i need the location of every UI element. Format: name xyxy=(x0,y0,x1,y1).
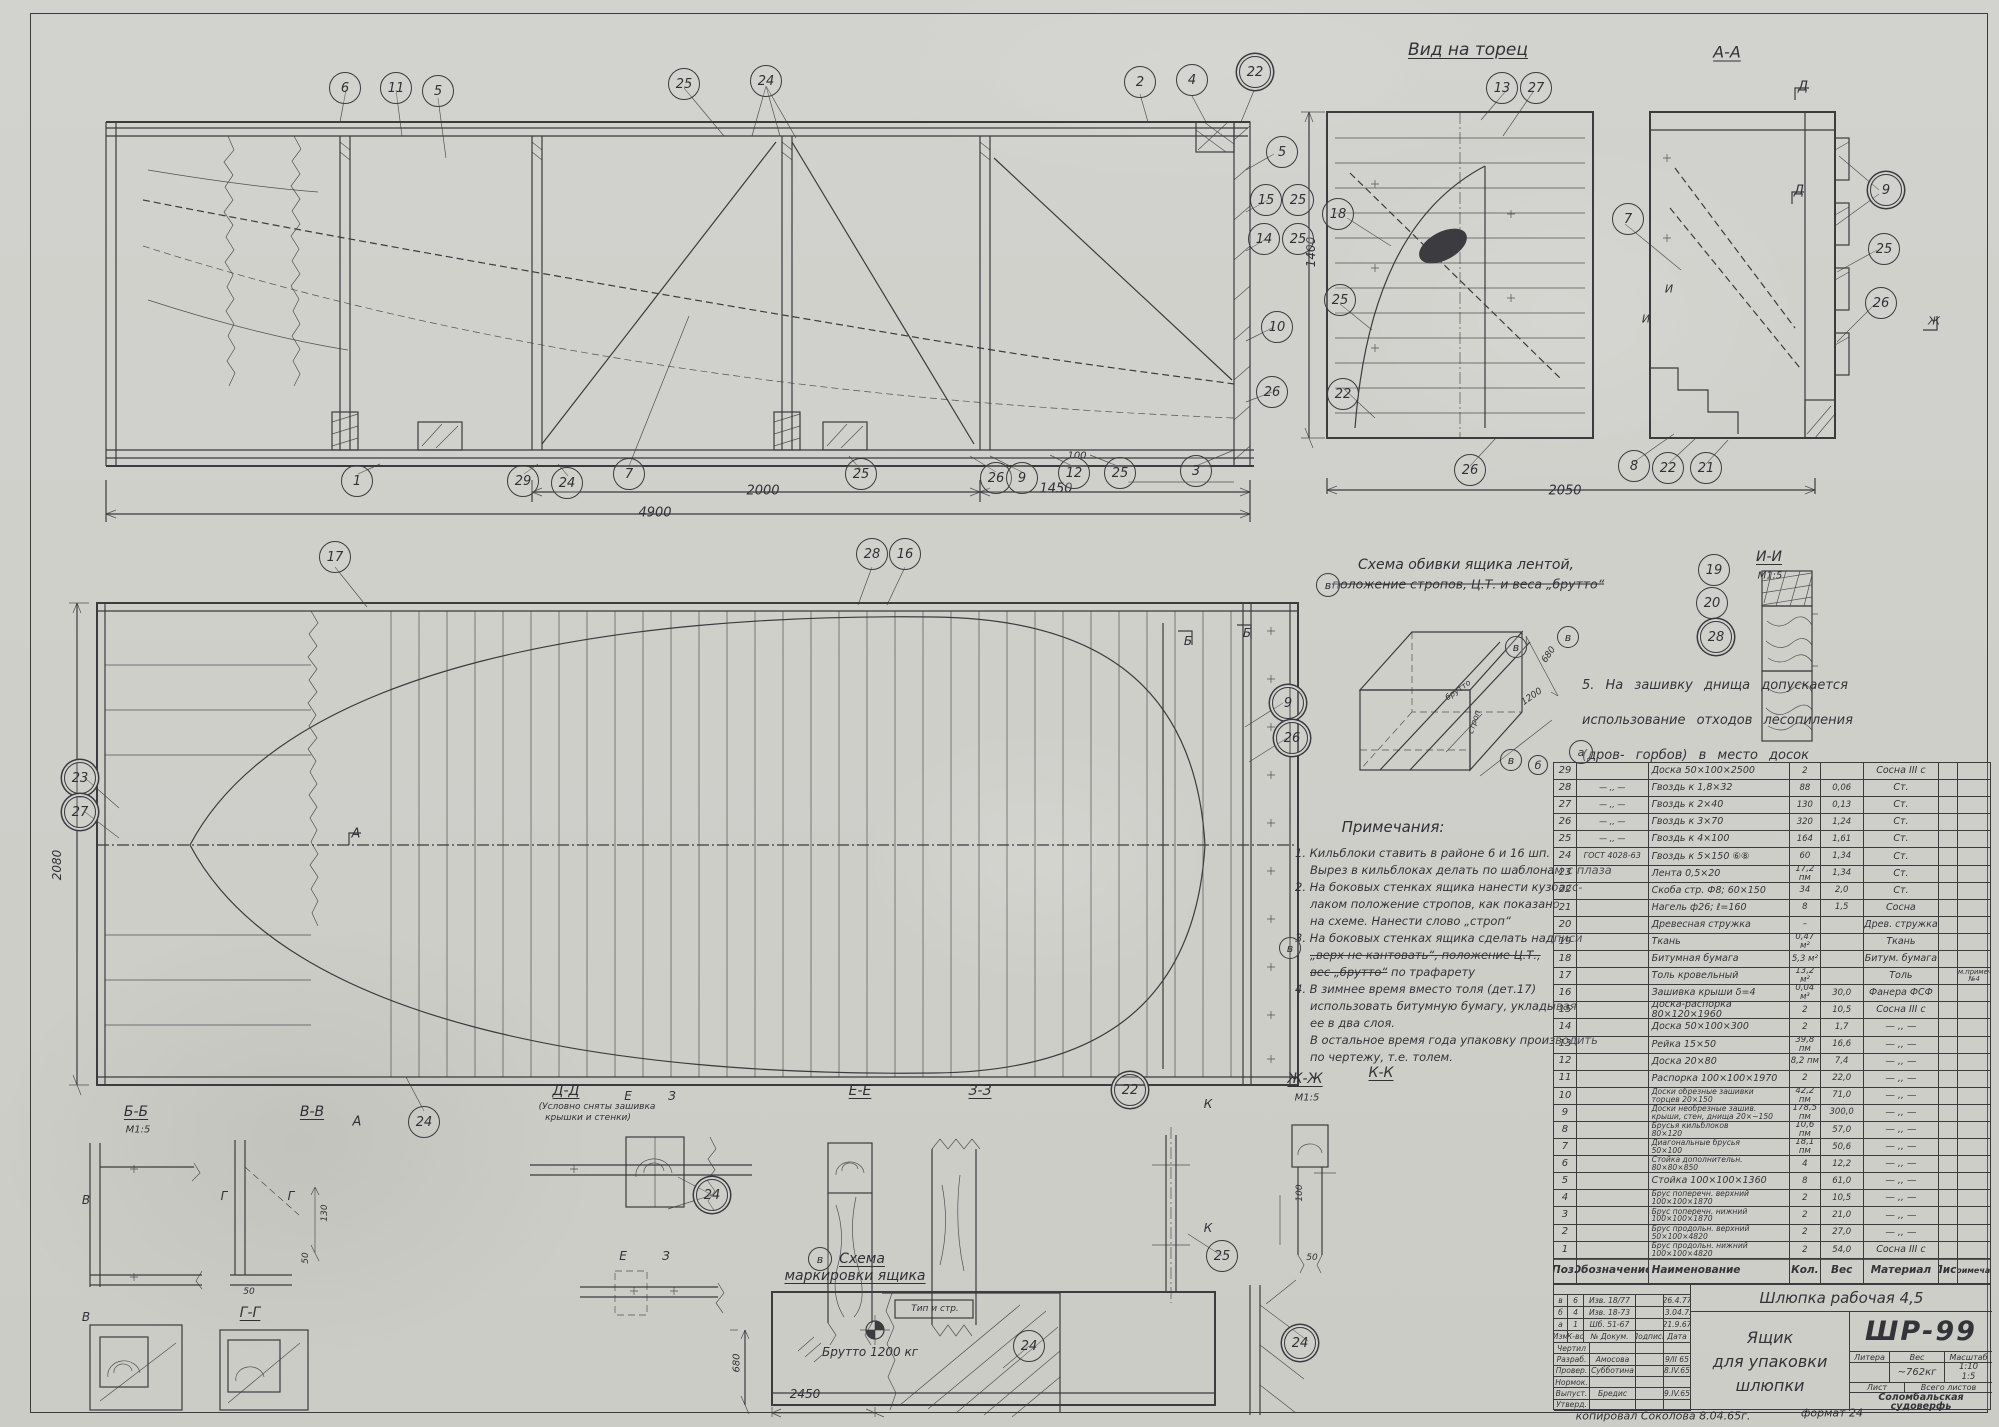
dim-label: В xyxy=(82,1310,90,1324)
table-cell: 5,3 м² xyxy=(1790,951,1821,967)
dim-label: К xyxy=(1204,1221,1213,1235)
dim-label: 130 xyxy=(320,1204,330,1221)
note-line: на схеме. Нанести слово „строп“ xyxy=(1295,913,1567,930)
title-block-cell xyxy=(1664,1377,1690,1387)
table-cell xyxy=(1577,1002,1649,1018)
title-block-cell xyxy=(1664,1343,1690,1353)
callout-2: 2 xyxy=(1124,66,1156,98)
callout-24: 24 xyxy=(551,467,583,499)
table-cell: 29 xyxy=(1554,763,1577,779)
table-row: 4Брус поперечн. верхний 100×100×1870210,… xyxy=(1554,1190,1990,1207)
callout-9: 9 xyxy=(1272,687,1304,719)
table-cell: 16,6 xyxy=(1821,1037,1864,1053)
table-cell xyxy=(1939,814,1958,830)
table-row: 19Ткань0,47 м²Ткань xyxy=(1554,934,1990,951)
dim-label: Б-Б xyxy=(124,1104,148,1120)
dim-label: Д xyxy=(1798,80,1808,95)
title-block-row: Чертил xyxy=(1554,1343,1690,1354)
table-cell xyxy=(1577,1105,1649,1121)
note-5-block: 5. На зашивку днища допускаетсяиспользов… xyxy=(1582,668,1942,773)
table-row: 6Стойка дополнительн. 80×80×850412,2— ,,… xyxy=(1554,1156,1990,1173)
dim-label: 2450 xyxy=(790,1387,821,1401)
table-cell: 0,13 xyxy=(1821,797,1864,813)
dim-label: 2000 xyxy=(746,484,779,499)
title-block-cell: Утверд. xyxy=(1554,1400,1590,1410)
callout-28: 28 xyxy=(1700,621,1732,653)
table-row: 27— ,, —Гвоздь к 2×401300,13Ст. xyxy=(1554,797,1990,814)
table-cell: Ст. xyxy=(1864,866,1940,882)
title-block-cell: Шб. 51-67 xyxy=(1584,1319,1636,1330)
table-cell xyxy=(1939,1002,1958,1018)
table-cell: Сосна III с xyxy=(1864,763,1940,779)
dim-label: 4900 xyxy=(638,506,671,521)
dim-label: Б xyxy=(1184,634,1192,648)
table-cell: 14 xyxy=(1554,1019,1577,1035)
table-cell: Ткань xyxy=(1649,934,1790,950)
table-cell xyxy=(1577,900,1649,916)
table-cell: 18,1 пм xyxy=(1790,1139,1821,1155)
table-cell: Ст. xyxy=(1864,848,1940,864)
callout-26: 26 xyxy=(1256,376,1288,408)
table-cell: Доска 20×80 xyxy=(1649,1054,1790,1070)
table-cell: 1 xyxy=(1554,1242,1577,1259)
table-cell xyxy=(1577,968,1649,984)
callout-14: 14 xyxy=(1248,223,1280,255)
item-name-line2: для упаковки xyxy=(1713,1350,1828,1374)
callout-25: 25 xyxy=(668,68,700,100)
table-cell: 164 xyxy=(1790,831,1821,847)
table-cell: 21 xyxy=(1554,900,1577,916)
callout-26: 26 xyxy=(1865,287,1897,319)
dim-label: З xyxy=(662,1249,670,1263)
table-cell: 2 xyxy=(1554,1225,1577,1241)
table-cell: 1,7 xyxy=(1821,1019,1864,1035)
title-block-cell: Чертил xyxy=(1554,1343,1590,1353)
table-cell xyxy=(1939,1019,1958,1035)
table-cell xyxy=(1939,900,1958,916)
table-row: 13Рейка 15×5039,8 пм16,6— ,, — xyxy=(1554,1037,1990,1054)
table-cell: 22 xyxy=(1554,883,1577,899)
table-cell: Диагональные брусья 50×100 xyxy=(1649,1139,1790,1155)
table-cell: Ст. xyxy=(1864,831,1940,847)
callout-в: в xyxy=(1505,636,1527,658)
copied-by: копировал Соколова 8.04.65г. xyxy=(1576,1410,1751,1423)
table-cell: 4 xyxy=(1554,1190,1577,1206)
table-cell xyxy=(1939,848,1958,864)
table-cell: 10 xyxy=(1554,1088,1577,1104)
title-block-cell xyxy=(1636,1295,1664,1306)
dim-label: Г xyxy=(288,1189,295,1203)
table-cell xyxy=(1821,763,1864,779)
table-cell: — ,, — xyxy=(1864,1105,1940,1121)
table-cell: 22,0 xyxy=(1821,1071,1864,1087)
title-block-cell: 26.4.77 xyxy=(1664,1295,1690,1306)
table-cell: Кол. xyxy=(1790,1259,1821,1283)
table-cell: 4 xyxy=(1790,1156,1821,1172)
table-cell: 2 xyxy=(1790,1190,1821,1206)
dim-label: 50 xyxy=(1306,1253,1317,1263)
table-cell xyxy=(1577,883,1649,899)
title-block-cell xyxy=(1636,1319,1664,1330)
callout-4: 4 xyxy=(1176,64,1208,96)
table-cell: 2 xyxy=(1790,1002,1821,1018)
table-cell: — ,, — xyxy=(1577,780,1649,796)
table-cell: Стойка 100×100×1360 xyxy=(1649,1173,1790,1189)
note-line: 4. В зимнее время вместо толя (дет.17) xyxy=(1295,981,1567,998)
table-cell: 17 xyxy=(1554,968,1577,984)
table-cell: Лента 0,5×20 xyxy=(1649,866,1790,882)
table-cell: 26 xyxy=(1554,814,1577,830)
dim-label: 680 xyxy=(732,1353,743,1372)
table-cell xyxy=(1577,951,1649,967)
table-cell: Гвоздь к 2×40 xyxy=(1649,797,1790,813)
table-cell: Вес xyxy=(1821,1259,1864,1283)
dim-label: К xyxy=(1204,1097,1213,1111)
table-cell: Битумная бумага xyxy=(1649,951,1790,967)
table-cell: см.примеч. №4 xyxy=(1958,968,1990,984)
title-block-cell: 9/II 65 xyxy=(1664,1354,1690,1364)
title-block-cell: К-во xyxy=(1568,1331,1584,1342)
dim-label: И xyxy=(1642,313,1650,326)
weight-value: ~762кг xyxy=(1889,1362,1944,1382)
masshtab-label: Масштаб xyxy=(1944,1351,1992,1362)
table-row: 18Битумная бумага5,3 м²Битум. бумага xyxy=(1554,951,1990,968)
table-cell: — ,, — xyxy=(1864,1225,1940,1241)
dim-label: Г xyxy=(221,1189,228,1203)
table-cell: 16 xyxy=(1554,985,1577,1001)
table-row: 22Скоба стр. Ф8; 60×150342,0Ст. xyxy=(1554,883,1990,900)
table-row: 17Толь кровельный13,2 м²Тольсм.примеч. №… xyxy=(1554,968,1990,985)
side-view-drawing xyxy=(88,50,1278,530)
table-cell xyxy=(1577,1071,1649,1087)
table-cell xyxy=(1939,917,1958,933)
callout-22: 22 xyxy=(1327,378,1359,410)
table-cell: 57,0 xyxy=(1821,1122,1864,1138)
title-block-cell: Амосова xyxy=(1590,1354,1636,1364)
callout-27: 27 xyxy=(1520,72,1552,104)
callout-24: 24 xyxy=(750,65,782,97)
table-cell: Толь xyxy=(1864,968,1940,984)
table-row: 14Доска 50×100×30021,7— ,, — xyxy=(1554,1019,1990,1036)
title-block-row: Выпуст.Бредис9.IV.65 xyxy=(1554,1388,1690,1399)
callout-28: 28 xyxy=(856,538,888,570)
dim-label: Ж xyxy=(1928,315,1940,328)
callout-22: 22 xyxy=(1239,56,1271,88)
table-cell: 0,04 м³ xyxy=(1790,985,1821,1001)
table-cell: Гвоздь к 3×70 xyxy=(1649,814,1790,830)
note-line: Вырез в кильблоках делать по шаблонам с … xyxy=(1295,862,1567,879)
title-block-cell: Разраб. xyxy=(1554,1354,1590,1364)
callout-12: 12 xyxy=(1058,457,1090,489)
table-cell xyxy=(1958,1207,1990,1223)
table-cell xyxy=(1958,1156,1990,1172)
table-cell xyxy=(1958,1037,1990,1053)
callout-1: 1 xyxy=(341,465,373,497)
table-cell xyxy=(1939,1054,1958,1070)
org-line2: судоверфь xyxy=(1891,1402,1952,1412)
title-block-cell: Дата xyxy=(1664,1331,1690,1342)
end-view-aa-drawing xyxy=(1295,38,1995,508)
table-cell xyxy=(1958,797,1990,813)
table-row: 21Нагель ф26; ℓ=16081,5Сосна xyxy=(1554,900,1990,917)
title-block-cell: Бредис xyxy=(1590,1388,1636,1398)
table-row: 3Брус поперечн. нижний 100×100×1870221,0… xyxy=(1554,1207,1990,1224)
table-cell: — ,, — xyxy=(1864,1088,1940,1104)
bottom-sections-drawing xyxy=(70,1125,1330,1420)
table-cell: Битум. бумага xyxy=(1864,951,1940,967)
table-cell xyxy=(1958,917,1990,933)
item-name-line3: шлюпки xyxy=(1736,1374,1805,1398)
table-cell xyxy=(1939,763,1958,779)
title-block-row: а1Шб. 51-6721.9.67 xyxy=(1554,1319,1690,1331)
table-cell: 7 xyxy=(1554,1139,1577,1155)
table-cell xyxy=(1577,1173,1649,1189)
table-cell: Древесная стружка xyxy=(1649,917,1790,933)
title-block-cell: 1 xyxy=(1568,1319,1584,1330)
dim-label: М1:5 xyxy=(1295,1093,1320,1104)
title-block-cell: 13.04.73 xyxy=(1664,1307,1690,1318)
table-cell xyxy=(1958,1173,1990,1189)
callout-25: 25 xyxy=(1206,1240,1238,1272)
table-cell: 23 xyxy=(1554,866,1577,882)
signature-rows: ЧертилРазраб.Амосова9/II 65Провер.Суббот… xyxy=(1554,1343,1690,1411)
item-name-line1: Ящик xyxy=(1747,1326,1793,1350)
table-cell: 300,0 xyxy=(1821,1105,1864,1121)
table-cell xyxy=(1939,968,1958,984)
table-cell: Брусья кильблоков 80×120 xyxy=(1649,1122,1790,1138)
table-cell xyxy=(1577,1122,1649,1138)
table-cell xyxy=(1958,763,1990,779)
table-cell xyxy=(1577,866,1649,882)
table-cell xyxy=(1958,1019,1990,1035)
dim-label: Г-Г xyxy=(240,1305,261,1321)
table-cell: 34 xyxy=(1790,883,1821,899)
parts-table-header: Поз.ОбозначениеНаименованиеКол.ВесМатери… xyxy=(1553,1258,1991,1284)
callout-10: 10 xyxy=(1261,311,1293,343)
table-cell: Рейка 15×50 xyxy=(1649,1037,1790,1053)
table-cell: 25 xyxy=(1554,831,1577,847)
table-cell: 27,0 xyxy=(1821,1225,1864,1241)
table-cell: 2 xyxy=(1790,1019,1821,1035)
litera-value xyxy=(1849,1362,1889,1382)
table-cell: Лист xyxy=(1939,1259,1958,1283)
table-cell: 12 xyxy=(1554,1054,1577,1070)
table-cell: 6 xyxy=(1554,1156,1577,1172)
callout-25: 25 xyxy=(1324,284,1356,316)
table-cell: 0,06 xyxy=(1821,780,1864,796)
table-cell xyxy=(1939,1190,1958,1206)
table-row: 12Доска 20×808,2 пм7,4— ,, — xyxy=(1554,1054,1990,1071)
title-block-cell xyxy=(1636,1307,1664,1318)
callout-5: 5 xyxy=(422,75,454,107)
table-cell xyxy=(1939,797,1958,813)
table-cell: 1,61 xyxy=(1821,831,1864,847)
table-cell: 2 xyxy=(1790,1242,1821,1259)
table-cell: — ,, — xyxy=(1577,797,1649,813)
title-block-row: Нормок. xyxy=(1554,1377,1690,1388)
callout-22: 22 xyxy=(1114,1074,1146,1106)
table-cell: Сосна III с xyxy=(1864,1002,1940,1018)
list-label: Лист xyxy=(1849,1382,1904,1392)
table-cell xyxy=(1939,951,1958,967)
dim-label: Ж-Ж xyxy=(1287,1071,1322,1087)
dim-label: М1:5 xyxy=(1758,571,1783,582)
table-cell: Древ. стружка xyxy=(1864,917,1940,933)
table-row: 9Доски необрезные зашив. крыши, стен, дн… xyxy=(1554,1105,1990,1122)
callout-24: 24 xyxy=(696,1179,728,1211)
title-block-cell: 9.IV.65 xyxy=(1664,1388,1690,1398)
title-block-cell xyxy=(1636,1388,1664,1398)
table-cell: Брус продольн. верхний 50×100×4820 xyxy=(1649,1225,1790,1241)
note-line: „верх не кантовать“, положение Ц.Т., xyxy=(1295,947,1567,964)
table-cell xyxy=(1958,1139,1990,1155)
dim-label: А xyxy=(352,827,361,842)
table-cell: — ,, — xyxy=(1864,1019,1940,1035)
table-cell xyxy=(1958,934,1990,950)
section-aa-title: А-А xyxy=(1713,43,1741,62)
table-cell xyxy=(1577,1019,1649,1035)
table-cell: Брус поперечн. нижний 100×100×1870 xyxy=(1649,1207,1790,1223)
table-row: 10Доски обрезные зашивки торцев 20×15042… xyxy=(1554,1088,1990,1105)
table-cell xyxy=(1577,1207,1649,1223)
table-cell xyxy=(1958,1122,1990,1138)
title-block-cell: Изв. 18-73 xyxy=(1584,1307,1636,1318)
table-cell xyxy=(1958,1242,1990,1259)
product-name: Шлюпка рабочая 4,5 xyxy=(1690,1285,1992,1311)
table-cell: Примечан. xyxy=(1958,1259,1990,1283)
scale-2: 1:5 xyxy=(1962,1373,1976,1382)
callout-7: 7 xyxy=(1612,203,1644,235)
table-cell: Обозначение xyxy=(1577,1259,1649,1283)
table-cell: 50,6 xyxy=(1821,1139,1864,1155)
table-cell xyxy=(1958,780,1990,796)
table-cell xyxy=(1958,900,1990,916)
callout-8: 8 xyxy=(1618,450,1650,482)
title-block-row: ИзмК-во№ Докум.ПодписьДата xyxy=(1554,1331,1690,1343)
title-block-row: Разраб.Амосова9/II 65 xyxy=(1554,1354,1690,1365)
table-cell xyxy=(1939,1225,1958,1241)
title-block-cell xyxy=(1590,1377,1636,1387)
table-cell: 27 xyxy=(1554,797,1577,813)
title-block-cell: 6 xyxy=(1568,1295,1584,1306)
title-block-cell: Подпись xyxy=(1636,1331,1664,1342)
callout-18: 18 xyxy=(1322,198,1354,230)
table-row: Поз.ОбозначениеНаименованиеКол.ВесМатери… xyxy=(1554,1259,1990,1283)
parts-table: 29Доска 50×100×25002Сосна III с 28— ,, —… xyxy=(1553,762,1991,1260)
table-cell: Доски необрезные зашив. крыши, стен, дни… xyxy=(1649,1105,1790,1121)
table-cell xyxy=(1939,1088,1958,1104)
table-cell: Ст. xyxy=(1864,797,1940,813)
table-cell: Материал xyxy=(1864,1259,1940,1283)
note-5-line: использование отходов лесопиления xyxy=(1582,703,1942,738)
table-cell xyxy=(1958,1071,1990,1087)
table-cell xyxy=(1958,1225,1990,1241)
dim-label: З xyxy=(668,1089,676,1103)
table-cell xyxy=(1939,1071,1958,1087)
table-cell: 7,4 xyxy=(1821,1054,1864,1070)
title-block-cell: Изв. 18/77 xyxy=(1584,1295,1636,1306)
table-cell: 2 xyxy=(1790,1071,1821,1087)
callout-15: 15 xyxy=(1250,184,1282,216)
table-cell: — ,, — xyxy=(1864,1122,1940,1138)
table-cell xyxy=(1958,883,1990,899)
table-row: 8Брусья кильблоков 80×12010,6 пм57,0— ,,… xyxy=(1554,1122,1990,1139)
table-row: 15Доска-распорка 80×120×1960210,5Сосна I… xyxy=(1554,1002,1990,1019)
table-cell: 17,2 пм xyxy=(1790,866,1821,882)
table-cell: 30,0 xyxy=(1821,985,1864,1001)
callout-6: 6 xyxy=(329,72,361,104)
title-block-cell: 8.IV.65 xyxy=(1664,1366,1690,1376)
title-block-cell: а xyxy=(1554,1319,1568,1330)
dim-label: З-З xyxy=(968,1083,991,1099)
blueprint-sheet: 1. Кильблоки ставить в районе 6 и 16 шп.… xyxy=(0,0,1999,1427)
callout-24: 24 xyxy=(408,1106,440,1138)
table-row: 26— ,, —Гвоздь к 3×703201,24Ст. xyxy=(1554,814,1990,831)
table-cell xyxy=(1939,780,1958,796)
table-cell: — ,, — xyxy=(1577,831,1649,847)
dim-label: 2080 xyxy=(50,850,64,881)
callout-7: 7 xyxy=(613,458,645,490)
title-block-row: в6Изв. 18/7726.4.77 xyxy=(1554,1295,1690,1307)
note-line: лаком положение стропов, как показано xyxy=(1295,896,1567,913)
table-cell: 24 xyxy=(1554,848,1577,864)
table-cell xyxy=(1821,951,1864,967)
organization: Соломбальская судоверфь xyxy=(1849,1392,1992,1411)
table-cell xyxy=(1939,985,1958,1001)
table-cell xyxy=(1939,866,1958,882)
table-row: 20Древесная стружка–Древ. стружка xyxy=(1554,917,1990,934)
table-cell xyxy=(1821,934,1864,950)
callout-26: 26 xyxy=(1454,454,1486,486)
callout-17: 17 xyxy=(319,541,351,573)
table-cell: Распорка 100×100×1970 xyxy=(1649,1071,1790,1087)
callout-24: 24 xyxy=(1284,1327,1316,1359)
table-row: 11Распорка 100×100×1970222,0— ,, — xyxy=(1554,1071,1990,1088)
title-block-cell xyxy=(1590,1400,1636,1410)
notes-list: 1. Кильблоки ставить в районе 6 и 16 шп.… xyxy=(1295,845,1567,1066)
dim-label: А xyxy=(353,1115,362,1130)
title-block: Шлюпка рабочая 4,5 в6Изв. 18/7726.4.77б4… xyxy=(1553,1284,1991,1410)
note-line: 3. На боковых стенках ящика сделать надп… xyxy=(1295,930,1567,947)
dim-label: 50 xyxy=(301,1252,311,1263)
dim-label: положение стропов, Ц.Т. и веса „брутто“ xyxy=(1332,577,1604,592)
table-cell: — ,, — xyxy=(1864,1156,1940,1172)
table-cell xyxy=(1939,1207,1958,1223)
vsego-label: Всего листов xyxy=(1904,1382,1992,1392)
dim-label: Д-Д xyxy=(553,1083,580,1099)
table-cell xyxy=(1577,917,1649,933)
dim-label: 2050 xyxy=(1548,484,1581,499)
table-cell: 3 xyxy=(1554,1207,1577,1223)
title-block-cell xyxy=(1636,1400,1664,1410)
note-line: ее в два слоя. xyxy=(1295,1015,1567,1032)
table-cell: — ,, — xyxy=(1864,1071,1940,1087)
table-cell xyxy=(1939,1105,1958,1121)
parts-table-rows: 29Доска 50×100×25002Сосна III с 28— ,, —… xyxy=(1554,763,1990,1259)
table-cell: Стойка дополнительн. 80×80×850 xyxy=(1649,1156,1790,1172)
table-cell: 42,2 пм xyxy=(1790,1088,1821,1104)
table-cell: 1,34 xyxy=(1821,848,1864,864)
table-cell xyxy=(1939,883,1958,899)
table-cell: Брус поперечн. верхний 100×100×1870 xyxy=(1649,1190,1790,1206)
callout-25: 25 xyxy=(1868,233,1900,265)
table-cell xyxy=(1577,1088,1649,1104)
table-cell xyxy=(1939,934,1958,950)
table-cell: 2 xyxy=(1790,1207,1821,1223)
note-line: использовать битумную бумагу, укладывая xyxy=(1295,998,1567,1015)
revision-rows: в6Изв. 18/7726.4.77б4Изв. 18-7313.04.73а… xyxy=(1554,1295,1690,1343)
table-cell: 8 xyxy=(1790,900,1821,916)
